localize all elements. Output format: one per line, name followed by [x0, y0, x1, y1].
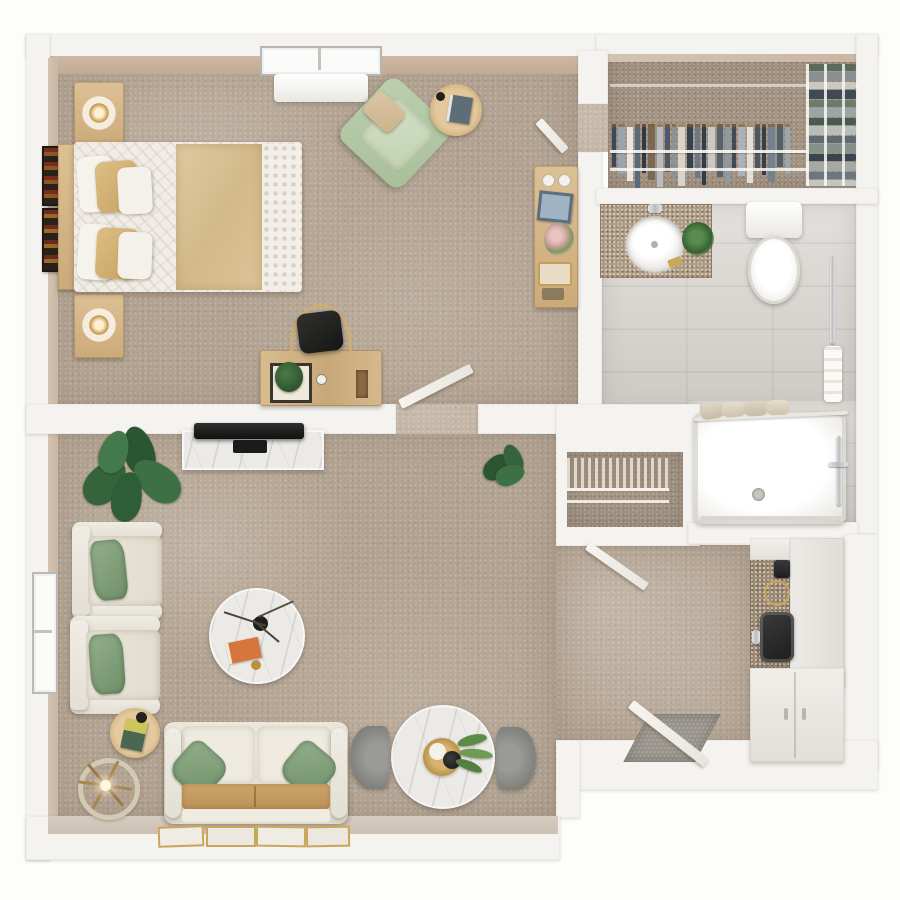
duvet-ruffle-edge	[262, 144, 302, 290]
candle-1	[542, 174, 555, 187]
hanging-garment	[768, 124, 775, 182]
linen-rail-2	[567, 500, 669, 503]
tan-duvet	[176, 144, 262, 290]
wire-rail-1	[610, 150, 808, 153]
round-side-table	[430, 84, 482, 136]
cabinet-handle-1	[784, 708, 788, 720]
wall-art-frame-1	[158, 825, 205, 848]
hanging-garment	[755, 124, 760, 168]
hanging-garment	[687, 124, 693, 171]
hanging-garment	[678, 124, 685, 186]
hanging-garment	[725, 124, 730, 184]
coffee-table	[209, 588, 305, 684]
desk	[260, 350, 382, 406]
dresser-misc	[542, 288, 564, 300]
armchair-2	[68, 616, 162, 714]
hanging-garment	[732, 124, 736, 169]
folded-garment	[806, 126, 856, 135]
window-mullion	[34, 630, 52, 633]
kitchen-upper-cabinet	[750, 538, 790, 560]
shower-tray	[694, 412, 846, 524]
mug	[436, 92, 445, 101]
hanging-garment	[635, 124, 640, 188]
hanging-garment	[747, 124, 753, 183]
shower-drain	[752, 488, 765, 501]
window-mullion	[318, 48, 321, 70]
faucet	[648, 204, 662, 213]
wall-art-frame-2	[206, 826, 256, 847]
tv	[194, 423, 304, 439]
wall-bedroom-right-upper	[578, 50, 608, 104]
wall-bed-living-right	[478, 404, 560, 434]
folded-garment	[806, 108, 856, 117]
dresser	[534, 166, 578, 308]
kitchen-white-counter	[790, 538, 844, 686]
kitchen-base-cabinets	[750, 668, 844, 762]
desk-plant	[275, 362, 303, 392]
hanging-garment	[618, 124, 625, 174]
wall-closet-bath-divider	[596, 188, 878, 204]
green-sprig	[459, 747, 494, 760]
table-lamp-top	[82, 96, 116, 130]
large-plant	[78, 420, 182, 524]
living-window	[32, 572, 58, 694]
floor-lamp	[76, 756, 136, 816]
wall-top-closet	[596, 34, 878, 56]
vanity-plant	[682, 222, 714, 256]
folded-garment	[806, 118, 856, 125]
cabinet-handle-2	[802, 708, 806, 720]
pillow-white-2	[117, 166, 153, 215]
folded-garment	[806, 144, 856, 153]
folded-garment	[806, 100, 856, 107]
small-round-table	[110, 708, 160, 758]
wall-art-frame-3	[256, 826, 306, 848]
folded-garment	[806, 82, 856, 89]
towel-hanging	[824, 346, 842, 402]
toilet-bowl	[748, 236, 800, 304]
sink-drain	[651, 241, 658, 248]
sink-faucet	[752, 630, 760, 644]
flower-vase	[544, 222, 574, 256]
desk-slot-tray	[356, 370, 368, 398]
wall-art-frame-4	[306, 826, 350, 848]
hanging-garment	[657, 124, 663, 187]
hanging-garment	[642, 124, 646, 173]
green-armchair	[342, 80, 448, 186]
dining-chair-right	[496, 727, 536, 789]
lamp-bulb	[100, 780, 111, 791]
wire-rail-vert-1	[806, 64, 809, 186]
linen-rail-1	[567, 488, 669, 491]
pillow-white-4	[117, 231, 153, 279]
green-sprig	[454, 756, 483, 775]
book-on-table	[446, 94, 473, 124]
armchair-1	[70, 522, 164, 620]
wall-step-vertical	[556, 740, 580, 818]
hanging-garment	[708, 124, 715, 170]
desk-chair	[288, 304, 350, 356]
wall-face-top-closet	[606, 54, 860, 62]
folded-garment	[806, 162, 856, 171]
gold-coaster	[251, 660, 261, 670]
shower-fixtures	[836, 436, 842, 506]
hanging-garment	[612, 124, 616, 167]
wire-rail-vert-2	[824, 64, 827, 186]
tv-base	[233, 440, 267, 453]
folded-clothes-stacks	[806, 64, 856, 186]
bedroom-doorway-floor	[396, 404, 478, 434]
photo-frame	[537, 190, 574, 223]
wall-kitchen-right	[844, 534, 878, 770]
green-pillow	[88, 633, 126, 695]
sofa-seat-tan	[182, 784, 330, 809]
bed	[58, 142, 302, 292]
wire-rail-vert-3	[842, 64, 845, 186]
folded-garment	[806, 154, 856, 161]
dining-chair-left	[350, 726, 390, 788]
folded-garment	[806, 180, 856, 186]
wire-rail-2	[610, 168, 808, 171]
magazine	[120, 718, 148, 752]
candle-2	[558, 174, 571, 187]
desk-plant-box	[270, 363, 312, 403]
bedroom-window	[260, 46, 382, 76]
decor-item	[136, 712, 147, 723]
wall-right-outer	[856, 34, 878, 534]
coffee-maker	[774, 560, 790, 578]
folded-garment	[806, 72, 856, 81]
hanging-garment	[702, 124, 706, 185]
green-sprig	[456, 732, 488, 749]
dining-table	[391, 705, 495, 809]
cabinet-seam	[794, 672, 796, 758]
folded-garment	[806, 64, 856, 71]
branch	[258, 600, 294, 617]
toilet-tank	[746, 202, 802, 238]
hall-kitchen-floor	[556, 545, 750, 740]
desk-mouse	[316, 374, 327, 385]
folded-garment	[806, 90, 856, 99]
burner-plate	[764, 580, 790, 606]
glass-track	[700, 516, 846, 520]
sofa-front-edge	[182, 809, 330, 822]
hanging-garment	[777, 124, 783, 167]
small-plant	[482, 440, 534, 492]
rolled-towel-3	[744, 400, 769, 417]
shower-handle	[828, 462, 848, 467]
sofa	[164, 720, 348, 826]
seat-seam	[254, 786, 256, 807]
floor-plan	[0, 0, 900, 900]
table-lamp-bottom	[82, 308, 116, 342]
folded-garment	[806, 172, 856, 179]
rolled-towel-4	[766, 400, 791, 416]
black-sink	[760, 612, 794, 662]
closet-doorway-floor	[578, 104, 608, 152]
gold-tray	[538, 262, 572, 286]
hanging-garment	[665, 124, 670, 172]
grab-bar	[830, 256, 835, 344]
chair-seat	[296, 309, 345, 354]
hanging-clothes	[612, 124, 804, 188]
hanging-garment	[785, 124, 790, 174]
linen-slats	[567, 458, 669, 488]
folded-garment	[806, 136, 856, 143]
